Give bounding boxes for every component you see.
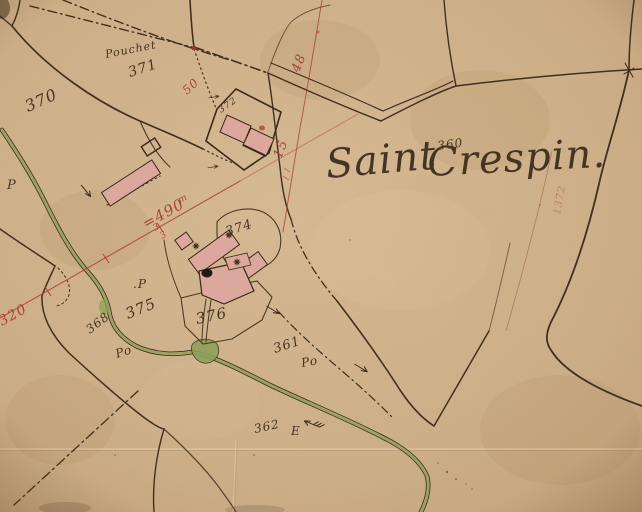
- well: [202, 269, 213, 278]
- map-label: Saint: [324, 132, 438, 187]
- junction-dot: [192, 46, 197, 51]
- map-label: P: [6, 178, 17, 193]
- cadastral-map: SaintCrespin.360370Pouchet37137237437537…: [0, 0, 642, 512]
- map-label: .P: [133, 277, 147, 291]
- junction-dot: [259, 126, 265, 131]
- junction-dot: [317, 31, 320, 34]
- map-label: E: [290, 424, 301, 438]
- map-canvas: SaintCrespin.360370Pouchet37137237437537…: [0, 0, 642, 512]
